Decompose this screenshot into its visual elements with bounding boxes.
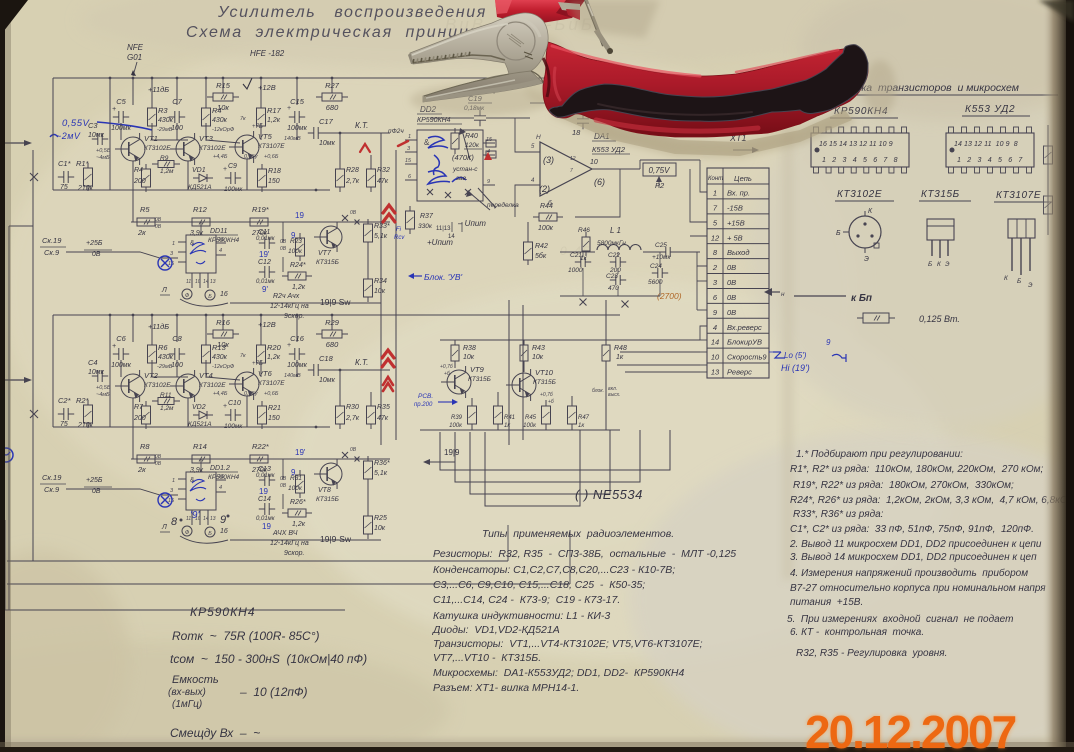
svg-text:0В: 0В	[280, 246, 287, 252]
svg-text:VT5: VT5	[258, 132, 273, 141]
svg-text:R47: R47	[578, 415, 590, 421]
svg-text:+: +	[112, 343, 116, 350]
svg-text:С9: С9	[228, 163, 237, 170]
svg-text:R28: R28	[346, 167, 359, 174]
svg-text:Резисторы: R32, R35 - СП3-3: Резисторы: R32, R35 - СП3-38Б, остальные…	[433, 548, 736, 560]
svg-text:Ск.19: Ск.19	[42, 236, 62, 245]
svg-text:РСВ.: РСВ.	[418, 393, 433, 400]
svg-text:10к: 10к	[532, 354, 544, 361]
svg-text:КТ3102Е: КТ3102Е	[199, 145, 226, 152]
svg-text:переделка: переделка	[487, 201, 519, 209]
svg-text:200: 200	[133, 178, 146, 185]
svg-text:1: 1	[408, 134, 411, 140]
svg-text:10мк: 10мк	[319, 140, 336, 147]
svg-text:Lo (5'): Lo (5')	[784, 351, 807, 360]
svg-text:1: 1	[172, 478, 175, 484]
svg-text:R22*: R22*	[252, 442, 270, 451]
svg-text:Б: Б	[208, 294, 212, 300]
svg-text:КТ315Б: КТ315Б	[316, 259, 339, 266]
svg-text:+0,7б: +0,7б	[540, 392, 553, 398]
svg-text:R12: R12	[193, 205, 208, 214]
svg-text:2: 2	[712, 263, 718, 272]
svg-text:+ 5В: + 5В	[727, 233, 743, 242]
svg-text:430к: 430к	[158, 117, 174, 124]
svg-text:-15В: -15В	[727, 203, 743, 212]
svg-text:К553 УД2: К553 УД2	[965, 104, 1015, 115]
svg-text:R33*, R36* из ряда:: R33*, R36* из ряда:	[793, 509, 884, 520]
svg-text:R32, R35 - Регулировка уровня: R32, R35 - Регулировка уровня.	[796, 648, 947, 659]
svg-text:~2мV: ~2мV	[56, 131, 81, 141]
svg-text:R33*: R33*	[374, 223, 390, 230]
svg-text:R34: R34	[374, 278, 387, 285]
svg-text:Б: Б	[928, 261, 932, 268]
svg-text:R26*: R26*	[290, 499, 306, 506]
svg-text:С12: С12	[258, 259, 271, 266]
svg-text:С13: С13	[258, 466, 271, 473]
svg-text:0В: 0В	[280, 483, 287, 489]
svg-text:(2700): (2700)	[657, 291, 682, 301]
svg-text:0,01мк: 0,01мк	[256, 236, 276, 242]
svg-text:10: 10	[590, 159, 598, 166]
svg-text:10к: 10к	[463, 354, 475, 361]
svg-text:КТ3107Е: КТ3107Е	[996, 190, 1041, 201]
svg-text:0В: 0В	[155, 454, 162, 460]
svg-text:47к: 47к	[377, 178, 389, 185]
svg-text:680: 680	[326, 340, 339, 349]
svg-text:С10: С10	[228, 400, 241, 407]
svg-text:7к: 7к	[240, 116, 246, 122]
svg-text:R2ч Ачх: R2ч Ачх	[273, 293, 300, 300]
svg-text:12: 12	[570, 156, 576, 162]
svg-text:0В: 0В	[350, 447, 357, 453]
svg-text:К.Т.: К.Т.	[355, 358, 368, 367]
svg-text:R38: R38	[463, 345, 476, 352]
svg-text:КР590КН4: КР590КН4	[190, 605, 256, 619]
svg-text:R23: R23	[290, 238, 302, 245]
svg-text:н: н	[781, 291, 785, 298]
svg-text:430к: 430к	[212, 354, 228, 361]
svg-text:0,55V: 0,55V	[62, 118, 90, 129]
svg-text:R4: R4	[134, 167, 143, 174]
svg-text:Выход: Выход	[727, 248, 750, 257]
svg-text:8: 8	[171, 516, 178, 528]
svg-text:19|9-Sw: 19|9-Sw	[320, 534, 352, 544]
svg-text:(6): (6)	[594, 177, 605, 187]
svg-text:&: &	[424, 138, 430, 147]
svg-text:С3: С3	[88, 121, 98, 130]
svg-text:1,2м: 1,2м	[160, 168, 174, 175]
svg-text:10: 10	[195, 279, 201, 285]
svg-text:С1*: С1*	[58, 159, 72, 168]
svg-text:100к: 100к	[538, 225, 554, 232]
svg-text:9: 9	[826, 338, 831, 347]
svg-text:С4: С4	[88, 358, 98, 367]
svg-text:(470К): (470К)	[452, 153, 474, 162]
svg-text:АЧХ ВЧ: АЧХ ВЧ	[272, 530, 298, 537]
svg-text:Конт: Конт	[708, 176, 723, 182]
svg-text:Ск.19: Ск.19	[42, 473, 62, 482]
svg-text:к Бп: к Бп	[851, 293, 872, 304]
svg-text:(2): (2)	[539, 184, 550, 194]
svg-text:КТ315Б: КТ315Б	[921, 189, 960, 200]
svg-text:Вх. пр.: Вх. пр.	[727, 189, 750, 198]
svg-text:R43: R43	[532, 345, 545, 352]
svg-text:+11дБ: +11дБ	[148, 85, 169, 94]
svg-text:Вх.реверс: Вх.реверс	[727, 323, 762, 332]
svg-text:330к: 330к	[418, 223, 433, 230]
svg-text:1,2к: 1,2к	[267, 117, 281, 124]
svg-text:С5: С5	[116, 97, 126, 106]
svg-text:В7-27 относительно корпуса при: В7-27 относительно корпуса при номинальн…	[790, 583, 1046, 594]
svg-text:19': 19'	[295, 448, 306, 457]
svg-text:1,2к: 1,2к	[292, 284, 306, 291]
svg-text:С17: С17	[319, 117, 334, 126]
svg-text:R18: R18	[268, 168, 281, 175]
svg-text:16: 16	[220, 528, 228, 535]
svg-text:+0,5Б: +0,5Б	[96, 385, 111, 391]
svg-text:14 13 12 11 10 9 8: 14 13 12 11 10 9 8	[954, 141, 1018, 148]
svg-text:С25: С25	[655, 242, 667, 249]
svg-text:19: 19	[295, 211, 304, 220]
svg-text:R9: R9	[160, 155, 169, 162]
svg-text:С15: С15	[290, 97, 305, 106]
svg-text:С24: С24	[650, 263, 662, 270]
svg-text:0,55у: 0,55у	[244, 154, 259, 160]
svg-text:R46: R46	[578, 227, 590, 234]
svg-text:R4: R4	[212, 106, 222, 115]
svg-text:Конденсаторы: С1,С2,С7,С8,С20,: Конденсаторы: С1,С2,С7,С8,С20,...С23 - К…	[433, 564, 675, 576]
svg-text:16: 16	[218, 474, 225, 480]
svg-text:+11дБ: +11дБ	[148, 322, 169, 331]
svg-text:Л: Л	[161, 524, 167, 531]
svg-text:Rcv: Rcv	[394, 235, 405, 241]
svg-text:10мк: 10мк	[88, 369, 105, 376]
svg-text:10к: 10к	[374, 288, 386, 295]
svg-text:Смещду Вх – ~: Смещду Вх – ~	[170, 726, 260, 740]
svg-text:+15В: +15В	[727, 218, 745, 227]
svg-text:10мк: 10мк	[319, 377, 336, 384]
svg-text:3,9к: 3,9к	[190, 230, 204, 237]
svg-text:зав.: зав.	[455, 175, 468, 182]
svg-text:~4мБ: ~4мБ	[96, 155, 110, 161]
svg-text:'9': '9'	[190, 510, 200, 521]
svg-text:Б: Б	[1017, 278, 1021, 285]
svg-text:питания +15В.: питания +15В.	[790, 597, 863, 608]
svg-text:5бк: 5бк	[535, 252, 547, 260]
svg-text:пр.200: пр.200	[414, 402, 433, 408]
svg-text:0В: 0В	[727, 278, 736, 287]
svg-text:R40: R40	[465, 133, 478, 140]
svg-text:С1*, С2* из ряда: 33 пФ, 51пФ: С1*, С2* из ряда: 33 пФ, 51пФ, 75пФ, 91п…	[790, 524, 1034, 535]
svg-text:Rотк ~ 75R (100R- 85C°): Rотк ~ 75R (100R- 85C°)	[172, 629, 320, 643]
svg-text:47к: 47к	[377, 415, 389, 422]
svg-text:С22: С22	[608, 252, 620, 259]
svg-text:КТ3107Е: КТ3107Е	[258, 143, 285, 150]
svg-text:блок.: блок.	[592, 388, 604, 394]
svg-text:19: 19	[259, 487, 268, 496]
svg-text:1: 1	[713, 189, 717, 198]
svg-text:-29мВ: -29мВ	[157, 127, 173, 133]
svg-text:150: 150	[268, 178, 280, 185]
svg-text:13: 13	[210, 279, 216, 285]
svg-text:Усилитель воспроизведения: Усилитель воспроизведения	[217, 4, 487, 21]
svg-text:100к: 100к	[449, 423, 463, 429]
svg-text:Э: Э	[864, 256, 869, 263]
svg-text:С14: С14	[258, 496, 271, 503]
svg-text:R24*: R24*	[290, 262, 306, 269]
svg-text:-12кОрФ: -12кОрФ	[212, 364, 235, 370]
svg-text:VT7: VT7	[318, 250, 332, 257]
svg-text:КТ3102Е: КТ3102Е	[144, 382, 171, 389]
svg-text:1.* Подбирают при регулировани: 1.* Подбирают при регулировании:	[796, 448, 963, 460]
svg-text:R36*: R36*	[374, 460, 390, 467]
svg-text:R14: R14	[193, 442, 207, 451]
svg-text:КР590КН4: КР590КН4	[417, 117, 451, 124]
svg-text:9скор.: 9скор.	[284, 313, 304, 320]
svg-text:~4мБ: ~4мБ	[96, 392, 110, 398]
svg-text:+0,5Б: +0,5Б	[96, 148, 111, 154]
svg-text:14: 14	[711, 338, 719, 347]
svg-text:L 1: L 1	[610, 226, 621, 235]
svg-text:пФ2ч: пФ2ч	[388, 128, 404, 135]
svg-text:Диоды: VD1,VD2-КД521А: Диоды: VD1,VD2-КД521А	[432, 624, 560, 636]
svg-text:С23: С23	[606, 273, 618, 280]
svg-text:0В: 0В	[155, 217, 162, 223]
svg-text:9': 9'	[262, 285, 268, 294]
svg-text:(1мГц): (1мГц)	[172, 699, 202, 710]
svg-text:R37: R37	[420, 213, 434, 220]
svg-text:Цепь: Цепь	[734, 174, 752, 183]
svg-text:R30: R30	[346, 404, 359, 411]
svg-text:– 10 (12пФ): – 10 (12пФ)	[239, 685, 308, 699]
svg-text:140мВ: 140мВ	[284, 373, 301, 379]
svg-text:15: 15	[405, 158, 412, 164]
svg-text:1: 1	[172, 241, 175, 247]
svg-text:VT9: VT9	[470, 365, 485, 374]
svg-text:7: 7	[570, 168, 573, 174]
svg-text:19|9: 19|9	[444, 448, 460, 457]
svg-text:С8: С8	[172, 334, 182, 343]
svg-text:R8: R8	[140, 442, 150, 451]
svg-text:VD1: VD1	[192, 167, 206, 174]
svg-text:R20: R20	[267, 343, 282, 352]
svg-text:19: 19	[262, 522, 271, 531]
svg-text:КТ3102Е: КТ3102Е	[144, 145, 171, 152]
svg-text:Ск.9: Ск.9	[44, 248, 60, 257]
svg-text:100к: 100к	[288, 485, 303, 492]
svg-text:С11: С11	[258, 229, 270, 236]
svg-text:Ф: Ф	[185, 293, 190, 299]
svg-text:Скорость9: Скорость9	[727, 353, 767, 362]
svg-text:Емкость: Емкость	[172, 674, 219, 686]
svg-text:1,2м: 1,2м	[160, 405, 174, 412]
svg-text:+0,7б: +0,7б	[440, 364, 453, 370]
svg-text:1 2 3 4 5 6 7 8: 1 2 3 4 5 6 7 8	[822, 157, 900, 164]
svg-text:0В: 0В	[727, 308, 736, 317]
svg-text:100к: 100к	[288, 248, 303, 255]
svg-text:-29мВ: -29мВ	[157, 364, 173, 370]
svg-text:10мк: 10мк	[88, 132, 105, 139]
svg-text:Б: Б	[836, 230, 841, 237]
svg-text:КТ3102Е: КТ3102Е	[199, 382, 226, 389]
svg-text:9скор.: 9скор.	[284, 550, 304, 557]
svg-text:13: 13	[210, 516, 216, 522]
svg-text:NFE: NFE	[127, 43, 144, 52]
svg-text:Fi: Fi	[396, 227, 402, 233]
svg-text:5600: 5600	[648, 279, 663, 286]
svg-text:VT2: VT2	[144, 371, 159, 380]
svg-text:210к: 210к	[77, 422, 94, 429]
svg-text:2,7к: 2,7к	[345, 415, 360, 422]
svg-text:Ск.9: Ск.9	[44, 485, 60, 494]
svg-text:Hi (19'): Hi (19')	[781, 363, 810, 373]
svg-text:0,55у: 0,55у	[244, 391, 259, 397]
svg-text:4. Измерения напряжений произв: 4. Измерения напряжений производить приб…	[790, 567, 1028, 579]
svg-text:+: +	[287, 105, 291, 112]
svg-text:R42: R42	[535, 243, 548, 250]
svg-text:16: 16	[218, 237, 225, 243]
svg-text:НFЕ -182: НFЕ -182	[250, 49, 285, 58]
svg-text:Блок. 'УВ': Блок. 'УВ'	[424, 272, 463, 282]
svg-text:DD1.2: DD1.2	[210, 465, 230, 472]
svg-text:120к: 120к	[465, 142, 480, 149]
svg-text:13: 13	[711, 368, 720, 377]
svg-text:150: 150	[268, 415, 280, 422]
svg-text:7к: 7к	[240, 353, 246, 359]
svg-text:12-14кГц на: 12-14кГц на	[270, 540, 309, 547]
svg-text:Катушка индуктивности: L1 - КИ: Катушка индуктивности: L1 - КИ-3	[433, 610, 610, 622]
svg-text:Типы применяемых радиоэлемен: Типы применяемых радиоэлементов.	[482, 528, 674, 540]
svg-text:0,75V: 0,75V	[649, 166, 671, 175]
svg-text:+: +	[112, 106, 116, 113]
svg-text:tсом ~ 150 - 300нS (10кОм|4: tсом ~ 150 - 300нS (10кОм|40 пФ)	[170, 652, 367, 666]
svg-text:R44: R44	[540, 203, 553, 210]
svg-text:R35: R35	[377, 404, 390, 411]
svg-text:0,01мк: 0,01мк	[256, 473, 276, 479]
svg-text:R19*, R22* из ряда: 180кОм, 2: R19*, R22* из ряда: 180кОм, 270кОм, 330к…	[793, 480, 1014, 491]
svg-text:КТ3107Е: КТ3107Е	[258, 380, 285, 387]
svg-text:(вх-вых): (вх-вых)	[168, 687, 206, 698]
svg-text:1к: 1к	[616, 354, 624, 361]
svg-text:2,7к: 2,7к	[345, 178, 360, 185]
svg-text:430к: 430к	[212, 117, 228, 124]
svg-text:R24*, R26* из ряда: 1,2кОм, 2: R24*, R26* из ряда: 1,2кОм, 2кОм, 3,3 кО…	[790, 495, 1068, 506]
svg-text:R21: R21	[268, 405, 281, 412]
svg-text:КТ315Б: КТ315Б	[533, 379, 556, 386]
svg-text:2. Вывод 11 микросхем DD1, DD2: 2. Вывод 11 микросхем DD1, DD2 присоедин…	[789, 539, 1042, 550]
svg-text:высх.: высх.	[608, 392, 621, 398]
svg-text:Транзисторы: VT1,...VT4-КТ310: Транзисторы: VT1,...VT4-КТ3102Е; VT5,VT6…	[433, 638, 703, 650]
svg-text:14: 14	[203, 516, 209, 522]
svg-text:С18: С18	[319, 354, 334, 363]
svg-text:VT1: VT1	[144, 134, 158, 143]
svg-text:0,125 Вт.: 0,125 Вт.	[919, 314, 960, 324]
svg-text:+0,6Б: +0,6Б	[264, 154, 279, 160]
svg-text:430к: 430к	[158, 354, 174, 361]
svg-text:+0,6Б: +0,6Б	[264, 391, 279, 397]
svg-text:140мВ: 140мВ	[284, 136, 301, 142]
svg-text:Реверс: Реверс	[727, 368, 752, 377]
svg-text:+: +	[223, 403, 227, 410]
svg-text:G01: G01	[127, 53, 142, 62]
svg-text:+4,4Б: +4,4Б	[213, 391, 228, 397]
svg-text:КТ3102Е: КТ3102Е	[837, 189, 882, 200]
svg-text:4: 4	[713, 323, 717, 332]
svg-text:0В: 0В	[350, 210, 357, 216]
svg-text:R25: R25	[374, 515, 387, 522]
svg-text:16 15 14 13 12 11 10 9: 16 15 14 13 12 11 10 9	[819, 141, 893, 148]
svg-text:100к: 100к	[523, 423, 537, 429]
svg-text:1000: 1000	[568, 267, 583, 274]
svg-text:Э: Э	[945, 261, 950, 268]
svg-text:R2*: R2*	[76, 396, 90, 405]
svg-text:R39: R39	[451, 415, 463, 421]
svg-text:R7: R7	[134, 404, 144, 411]
svg-text:R17: R17	[267, 106, 282, 115]
svg-text:+Uпит: +Uпит	[427, 238, 453, 247]
svg-text:4: 4	[219, 248, 222, 254]
svg-text:R1*, R2* из ряда: 110кОм, 180: R1*, R2* из ряда: 110кОм, 180кОм, 220кОм…	[790, 464, 1044, 475]
svg-text:19': 19'	[259, 250, 270, 259]
svg-text:С3,...С6, С9,С10, С15,...С18,: С3,...С6, С9,С10, С15,...С18, С25 - К50-…	[433, 579, 645, 591]
svg-text:С2*: С2*	[58, 396, 72, 405]
svg-text:5. При измерениях входной с: 5. При измерениях входной сигнал не пода…	[787, 614, 1013, 625]
svg-text:9: 9	[487, 179, 490, 185]
svg-text:R32: R32	[377, 167, 390, 174]
svg-text:1,2к: 1,2к	[267, 354, 281, 361]
svg-text:+25Б: +25Б	[86, 240, 103, 247]
svg-text:5,1к: 5,1к	[374, 470, 388, 477]
svg-text:10к: 10к	[374, 525, 386, 532]
svg-text:R45: R45	[525, 415, 537, 421]
svg-text:БлокирУВ: БлокирУВ	[727, 338, 762, 347]
svg-text:С7: С7	[172, 97, 182, 106]
svg-text:1 2 3 4 5 6 7: 1 2 3 4 5 6 7	[957, 157, 1025, 164]
svg-text:+: +	[223, 166, 227, 173]
svg-text:10: 10	[711, 353, 720, 362]
svg-text:470: 470	[608, 285, 619, 292]
svg-text:VT10: VT10	[535, 368, 554, 377]
svg-text:Разъем: ХТ1- вилка МРН14-1.: Разъем: ХТ1- вилка МРН14-1.	[433, 682, 579, 694]
svg-text:3,9к: 3,9к	[190, 467, 204, 474]
svg-text:20.12.2007: 20.12.2007	[805, 706, 1016, 752]
svg-text:12: 12	[711, 233, 720, 242]
svg-text:+б: +б	[548, 399, 554, 405]
svg-text:С16: С16	[290, 334, 305, 343]
svg-text:0В: 0В	[155, 461, 162, 467]
svg-text:11|13: 11|13	[436, 226, 451, 232]
svg-text:11: 11	[186, 279, 191, 285]
svg-text:0В: 0В	[155, 224, 162, 230]
svg-text:Б: Б	[208, 531, 212, 537]
svg-text:+25Б: +25Б	[86, 477, 103, 484]
svg-text:9: 9	[220, 514, 226, 526]
svg-text:VT8: VT8	[318, 487, 331, 494]
svg-text:6. КТ - контрольная точка.: 6. КТ - контрольная точка.	[790, 627, 924, 638]
svg-text:200: 200	[133, 415, 146, 422]
svg-text:0В: 0В	[727, 293, 736, 302]
svg-text:VT7,...VT10 - КТ315Б.: VT7,...VT10 - КТ315Б.	[433, 652, 541, 664]
svg-text:2к: 2к	[137, 465, 146, 474]
svg-text:Н: Н	[536, 134, 541, 141]
svg-text:С21: С21	[570, 252, 582, 259]
svg-text:0В: 0В	[727, 263, 736, 272]
svg-text:R41: R41	[504, 415, 515, 421]
svg-text:R1*: R1*	[76, 159, 90, 168]
svg-text:+4,4Б: +4,4Б	[213, 154, 228, 160]
svg-text:R19*: R19*	[252, 205, 270, 214]
svg-text:КТ315Б: КТ315Б	[316, 496, 339, 503]
